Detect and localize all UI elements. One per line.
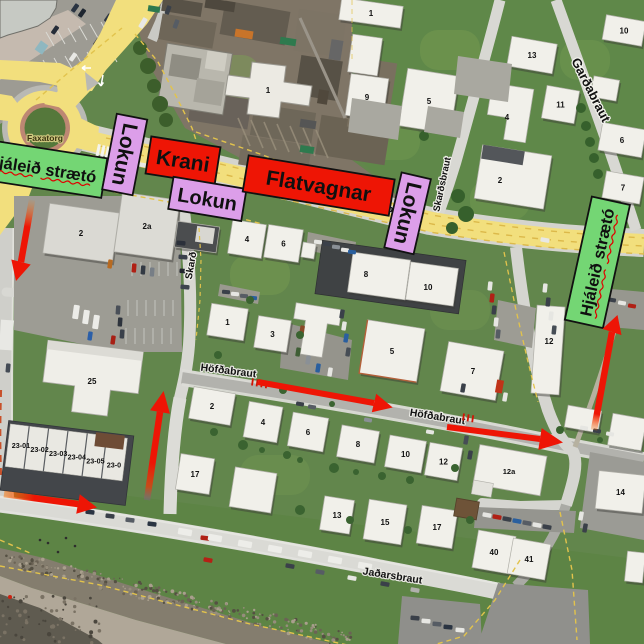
svg-text:12: 12	[545, 337, 554, 346]
svg-text:4: 4	[261, 418, 266, 427]
svg-text:23-02: 23-02	[30, 445, 48, 454]
svg-text:5: 5	[390, 347, 395, 356]
svg-text:2: 2	[210, 402, 215, 411]
svg-text:8: 8	[356, 440, 361, 449]
svg-text:6: 6	[620, 136, 625, 145]
svg-text:2: 2	[79, 229, 84, 238]
svg-text:23-05: 23-05	[86, 457, 104, 466]
svg-text:17: 17	[191, 470, 200, 479]
svg-text:41: 41	[525, 555, 534, 564]
svg-text:25: 25	[88, 377, 97, 386]
svg-text:23-0: 23-0	[107, 461, 121, 470]
svg-text:10: 10	[424, 283, 433, 292]
svg-text:5: 5	[427, 97, 432, 106]
svg-text:23-04: 23-04	[68, 453, 86, 462]
svg-text:13: 13	[528, 51, 537, 60]
svg-text:8: 8	[364, 270, 369, 279]
svg-text:13: 13	[333, 511, 342, 520]
svg-text:1: 1	[369, 9, 374, 18]
svg-text:Faxatorg: Faxatorg	[27, 133, 63, 143]
svg-text:11: 11	[556, 100, 565, 109]
svg-text:7: 7	[621, 183, 626, 192]
svg-text:4: 4	[245, 235, 250, 244]
svg-text:1: 1	[266, 86, 271, 95]
svg-text:12: 12	[439, 457, 448, 466]
svg-text:23-01: 23-01	[12, 441, 30, 450]
svg-text:7: 7	[471, 367, 476, 376]
svg-text:17: 17	[433, 523, 442, 532]
svg-text:2a: 2a	[143, 222, 152, 231]
svg-text:2: 2	[498, 176, 503, 185]
svg-text:14: 14	[616, 488, 625, 497]
svg-text:6: 6	[306, 428, 311, 437]
svg-text:15: 15	[381, 518, 390, 527]
svg-text:1: 1	[225, 318, 230, 327]
svg-text:10: 10	[401, 450, 410, 459]
svg-text:4: 4	[505, 113, 510, 122]
svg-text:12a: 12a	[503, 467, 516, 476]
svg-text:23-03: 23-03	[49, 449, 67, 458]
svg-text:10: 10	[620, 26, 629, 35]
svg-text:40: 40	[490, 548, 499, 557]
svg-text:6: 6	[281, 239, 286, 248]
svg-text:3: 3	[270, 330, 275, 339]
